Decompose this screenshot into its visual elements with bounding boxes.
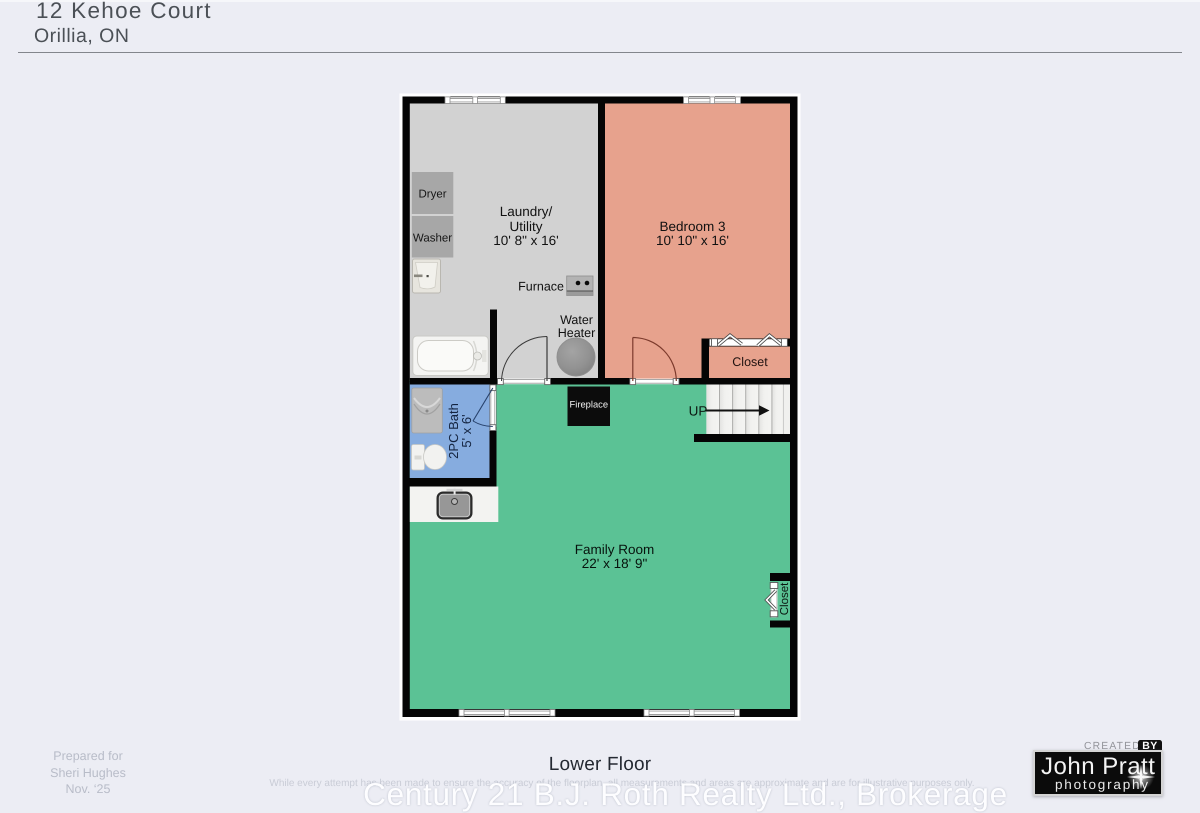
svg-text:10' 8" x 16': 10' 8" x 16' <box>493 233 559 248</box>
svg-text:Laundry/: Laundry/ <box>500 204 553 219</box>
svg-text:10' 10" x 16': 10' 10" x 16' <box>656 233 729 248</box>
svg-text:Fireplace: Fireplace <box>570 399 609 410</box>
svg-text:Washer: Washer <box>413 233 452 245</box>
svg-text:Closet: Closet <box>732 355 768 369</box>
svg-text:Family Room: Family Room <box>575 542 655 557</box>
svg-text:Closet: Closet <box>779 582 791 615</box>
svg-text:Water: Water <box>560 313 593 327</box>
svg-text:Furnace: Furnace <box>518 280 564 294</box>
svg-text:5' x 6': 5' x 6' <box>459 414 474 447</box>
svg-text:Bedroom 3: Bedroom 3 <box>659 219 725 234</box>
svg-text:Utility: Utility <box>510 219 543 234</box>
svg-text:UP: UP <box>689 404 708 419</box>
svg-text:Dryer: Dryer <box>418 189 446 201</box>
svg-text:Heater: Heater <box>558 326 596 340</box>
svg-text:22' x 18' 9": 22' x 18' 9" <box>582 556 648 571</box>
